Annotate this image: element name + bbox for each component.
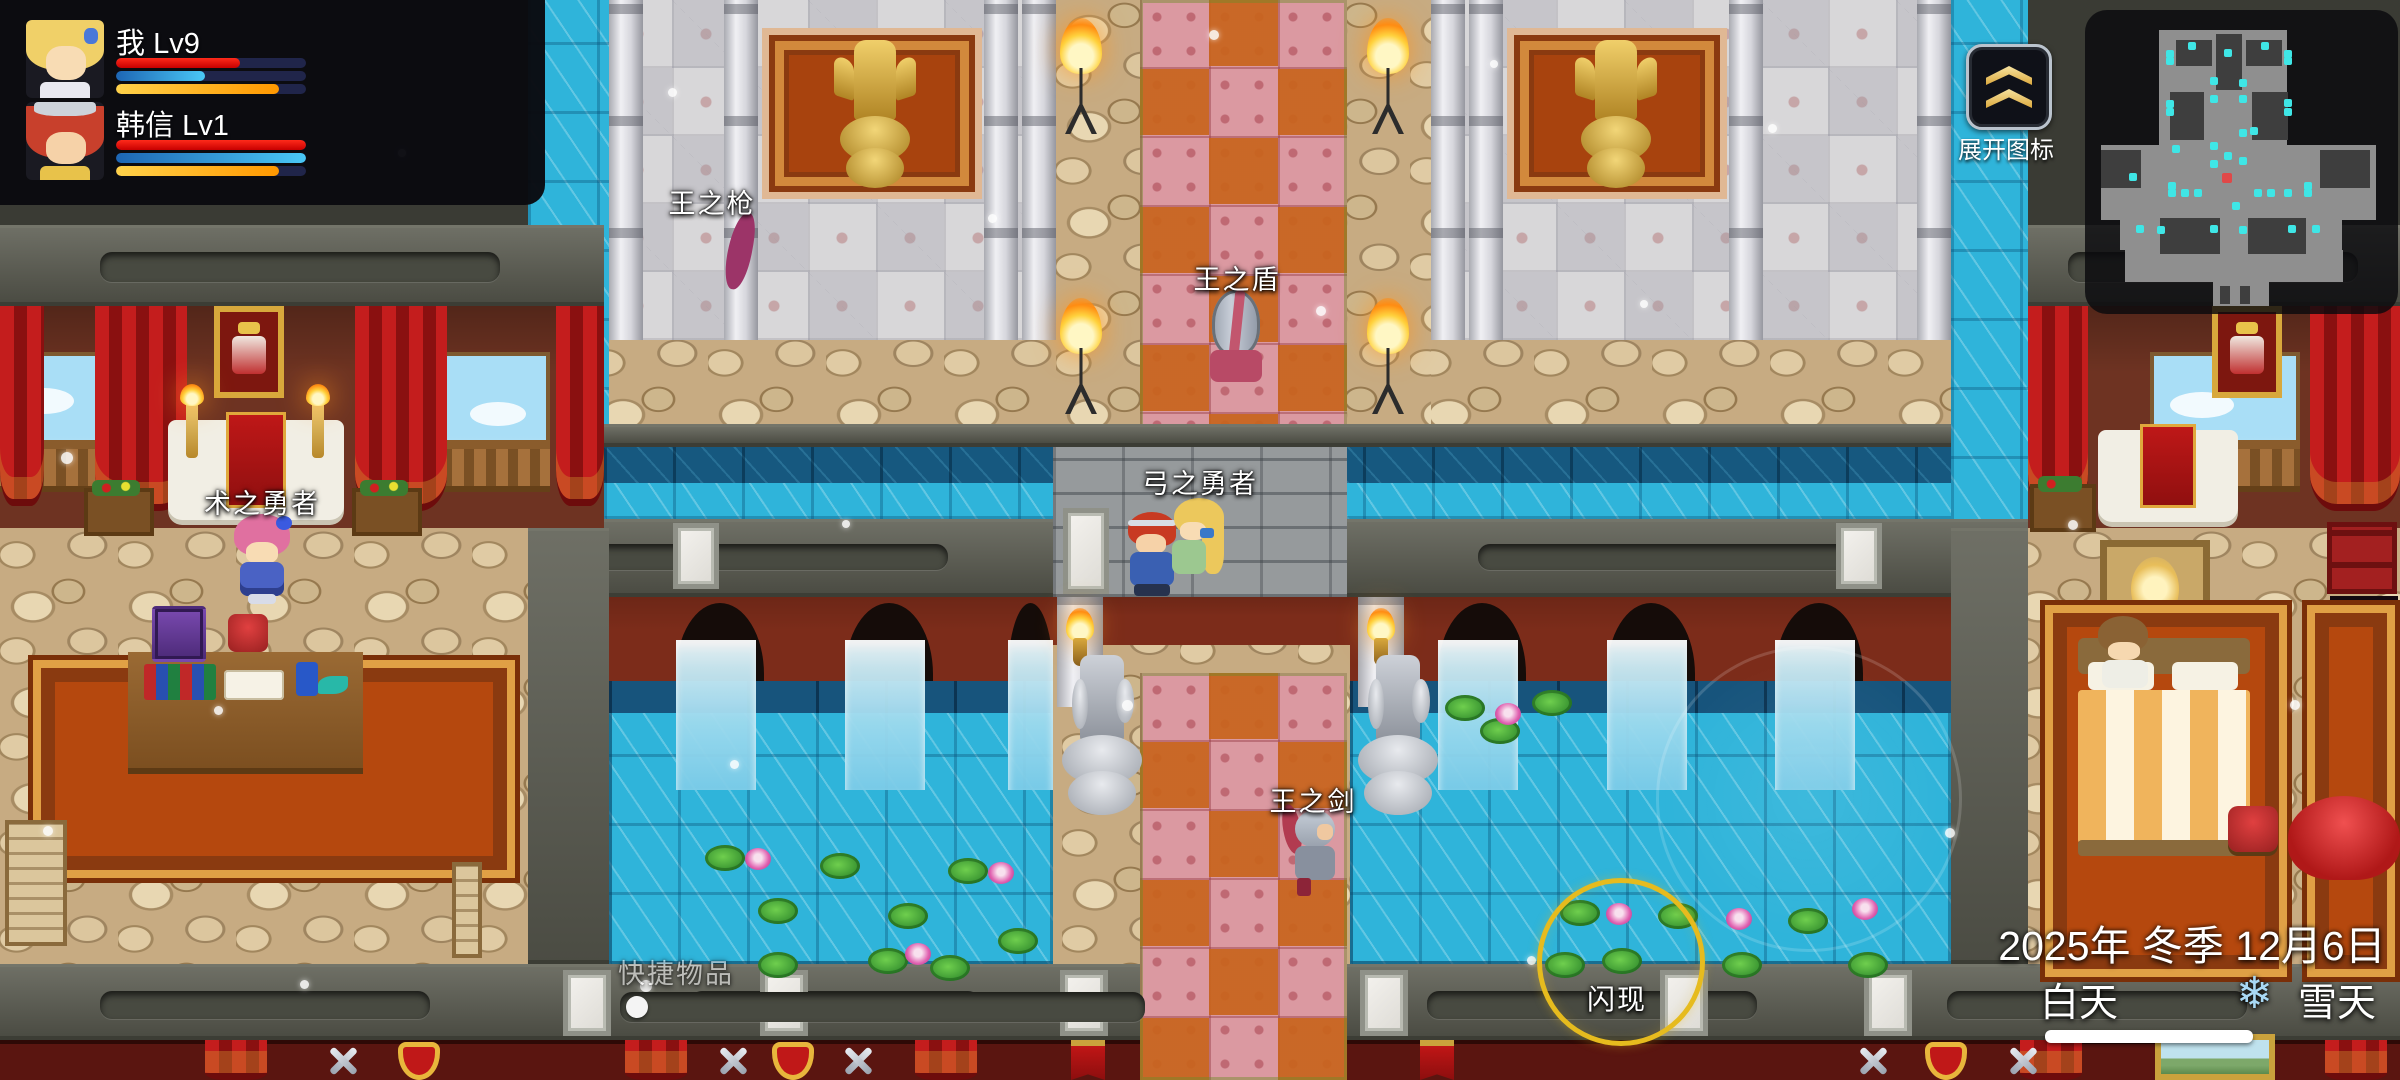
daytime-progress-bar (2045, 1030, 2253, 1043)
minimap-npc-dot (2239, 95, 2247, 103)
snow-particle (1490, 60, 1498, 68)
snow-particle (1122, 700, 1133, 711)
ink-jar (296, 662, 318, 696)
member-level: Lv9 (153, 28, 200, 60)
red-stool (2228, 806, 2278, 852)
torch-stand (1365, 18, 1411, 136)
gold-angel-statue (832, 40, 918, 205)
knight-statue (1354, 655, 1442, 825)
npc-label-sword: 王之剑 (1270, 780, 1357, 819)
minimap-npc-dot (2304, 189, 2312, 197)
minimap-chamber (2240, 286, 2250, 304)
time-of-day: 白天 (2040, 972, 2118, 1028)
minimap-npc-dot (2157, 226, 2165, 234)
minimap-npc-dot (2284, 57, 2292, 65)
minimap-npc-dot (2166, 108, 2174, 116)
marble-tile (673, 523, 719, 589)
curtain (205, 1040, 267, 1080)
minimap-npc-dot (2136, 225, 2144, 233)
flower-box (352, 488, 422, 536)
quick-items-handle[interactable] (626, 996, 648, 1018)
minimap-npc-dot (2224, 152, 2232, 160)
flower-box (2030, 484, 2096, 532)
quick-items-label: 快捷物品 (618, 952, 734, 991)
minimap-npc-dot (2239, 129, 2247, 137)
snow-particle (1316, 306, 1326, 316)
crossed-swords-emblem (2000, 1044, 2044, 1078)
expand-icons-button[interactable] (1966, 44, 2052, 130)
hero-archer[interactable] (1172, 498, 1226, 586)
crossed-swords-emblem (835, 1044, 879, 1078)
minimap-npc-dot (2261, 42, 2269, 50)
crossed-swords-emblem (710, 1044, 754, 1078)
quill-feather (318, 676, 348, 694)
lotus-flower (1726, 908, 1752, 930)
member-name-level: 韩信 Lv1 (116, 102, 229, 144)
lotus-flower (905, 943, 931, 965)
minimap-player-dot (2222, 173, 2232, 183)
red-round-table (2288, 796, 2400, 880)
snow-particle (1527, 956, 1536, 965)
mp-bar (116, 71, 306, 81)
member-name-level: 我 Lv9 (116, 20, 200, 62)
lotus-flower (1495, 703, 1521, 725)
mp-fill (116, 153, 306, 163)
expand-icons-label: 展开图标 (1958, 130, 2054, 165)
crossed-swords-emblem (320, 1044, 364, 1078)
minimap-npc-dot (2239, 79, 2247, 87)
minimap-npc-dot (2129, 173, 2137, 181)
hp-bar (116, 58, 306, 68)
npc-label-shield: 王之盾 (1194, 258, 1281, 297)
minimap-npc-dot (2181, 189, 2189, 197)
snow-particle (2290, 700, 2300, 710)
lily-pad (868, 948, 908, 974)
books (144, 664, 216, 700)
minimap-npc-dot (2168, 189, 2176, 197)
marble-pillar (1917, 0, 1951, 340)
marble-pillar (1431, 0, 1465, 340)
lily-pad (948, 858, 988, 884)
open-book (224, 670, 284, 700)
royal-room (2028, 306, 2400, 528)
candle-flame (180, 384, 204, 406)
tp-fill (116, 166, 279, 176)
minimap-room (2120, 218, 2342, 250)
minimap-chamber (2320, 150, 2370, 188)
torch-stand (1058, 298, 1104, 416)
waterfall (845, 640, 925, 790)
snow-particle (300, 980, 309, 989)
minimap-npc-dot (2267, 189, 2275, 197)
tp-bar (116, 166, 306, 176)
minimap-chamber (2160, 218, 2220, 254)
lily-pad (758, 898, 798, 924)
minimap-npc-dot (2232, 202, 2240, 210)
flash-skill-button[interactable] (1537, 878, 1705, 1046)
lily-pad (998, 928, 1038, 954)
minimap-chamber (2170, 92, 2204, 140)
snow-particle (988, 214, 997, 223)
curtain (625, 1040, 687, 1080)
lily-pad (820, 853, 860, 879)
marble-pillar (1469, 0, 1503, 340)
minimap-npc-dot (2166, 57, 2174, 65)
snow-particle (842, 520, 850, 528)
tp-bar (116, 84, 306, 94)
npc-magic-hero[interactable] (234, 514, 292, 604)
lily-pad (888, 903, 928, 929)
candelabra (186, 400, 198, 458)
minimap-npc-dot (2224, 49, 2232, 57)
npc-spear-hero[interactable] (728, 212, 754, 292)
snow-particle (1640, 300, 1648, 308)
light-reflection (1656, 646, 1962, 952)
snow-particle (43, 826, 53, 836)
bookshelf (2327, 522, 2397, 594)
lotus-flower (1852, 898, 1878, 920)
snow-particle (214, 706, 223, 715)
lily-pad (1722, 952, 1762, 978)
red-stool (228, 614, 268, 652)
minimap-npc-dot (2210, 225, 2218, 233)
minimap-npc-dot (2166, 100, 2174, 108)
chevron-up-icon (1986, 89, 2032, 108)
mp-bar (116, 153, 306, 163)
flash-skill-label: 闪现 (1587, 978, 1647, 1018)
minimap-npc-dot (2284, 108, 2292, 116)
npc-label-archer: 弓之勇者 (1142, 462, 1258, 501)
member-name: 我 (116, 28, 145, 60)
lily-pad (1532, 690, 1572, 716)
wall-scroll (5, 820, 67, 946)
lily-pad (705, 845, 745, 871)
snow-particle (668, 88, 677, 97)
minimap-npc-dot (2254, 189, 2262, 197)
king-portrait (2212, 306, 2282, 398)
hp-bar (116, 140, 306, 150)
wall-scroll (452, 862, 482, 958)
study-desk (128, 652, 363, 768)
snowflake-icon: ❄ (2236, 968, 2273, 1019)
curtain (2325, 1040, 2387, 1080)
minimap-npc-dot (2172, 145, 2180, 153)
crossed-swords-emblem (1850, 1044, 1894, 1078)
marble-tile (1836, 523, 1882, 589)
lily-pad (930, 955, 970, 981)
minimap-npc-dot (2288, 225, 2296, 233)
minimap-chamber (2101, 150, 2141, 188)
stone-wall (1951, 528, 2028, 964)
snow-particle (730, 760, 739, 769)
marble-tile (1063, 508, 1109, 594)
npc-shield-hero[interactable] (1204, 290, 1268, 384)
waterfall (1008, 640, 1053, 790)
snow-particle (61, 452, 73, 464)
stone-wall (528, 528, 609, 964)
member-level: Lv1 (182, 110, 229, 142)
lotus-flower (745, 848, 771, 870)
game-screen: 王之枪 王之盾 弓之勇者 王之剑 术之勇者 我 Lv9 (0, 0, 2400, 1080)
candelabra (312, 400, 324, 458)
lily-pad (758, 952, 798, 978)
snow-particle (1209, 30, 1219, 40)
npc-boy-on-bed[interactable] (2096, 616, 2152, 692)
npc-label-magic: 术之勇者 (204, 482, 320, 521)
chevron-up-icon (1986, 66, 2032, 85)
hp-fill (116, 140, 306, 150)
member-name: 韩信 (116, 110, 174, 142)
red-banner (1071, 1040, 1105, 1080)
gold-angel-statue (1573, 40, 1659, 205)
knight-statue (1058, 655, 1146, 825)
marble-pillar (1729, 0, 1763, 340)
minimap-npc-dot (2239, 226, 2247, 234)
avatar-hanxin[interactable] (26, 102, 104, 180)
npc-label-spear: 王之枪 (669, 182, 756, 221)
minimap-npc-dot (2188, 42, 2196, 50)
marble-tile (563, 970, 611, 1036)
torch-stand (1058, 18, 1104, 136)
minimap-npc-dot (2210, 142, 2218, 150)
lily-pad (1445, 695, 1485, 721)
quick-items-bar[interactable] (620, 992, 1145, 1022)
marble-tile (1864, 970, 1912, 1036)
hp-fill (116, 58, 240, 68)
weather-label: 雪天 (2298, 972, 2376, 1028)
minimap-npc-dot (2194, 189, 2202, 197)
snow-particle (1768, 124, 1777, 133)
minimap-npc-dot (2250, 127, 2258, 135)
red-banner (1420, 1040, 1454, 1080)
snow-particle (1945, 828, 1955, 838)
altar-table (2098, 430, 2238, 522)
king-portrait (214, 306, 284, 398)
candle-flame (306, 384, 330, 406)
minimap-npc-dot (2210, 95, 2218, 103)
lily-pad (1788, 908, 1828, 934)
game-date: 2025年 冬季 12月6日 (1992, 912, 2392, 972)
minimap-npc-dot (2284, 189, 2292, 197)
lotus-flower (988, 862, 1014, 884)
minimap-npc-dot (2312, 225, 2320, 233)
minimap-chamber (2220, 286, 2230, 304)
stone-wall (0, 225, 604, 306)
minimap-npc-dot (2284, 99, 2292, 107)
snow-particle (2068, 520, 2078, 530)
avatar-player[interactable] (26, 20, 104, 98)
minimap-room (2125, 250, 2343, 282)
lily-pad (1848, 952, 1888, 978)
purple-chest (152, 606, 206, 662)
marble-pillar (1022, 0, 1056, 340)
minimap-chamber (2248, 218, 2306, 254)
curtain (915, 1040, 977, 1080)
marble-pillar (984, 0, 1018, 340)
waterfall (676, 640, 756, 790)
marble-pillar (609, 0, 643, 340)
npc-sword-hero[interactable] (1283, 808, 1343, 898)
minimap-npc-dot (2239, 157, 2247, 165)
minimap-npc-dot (2210, 77, 2218, 85)
marble-tile (1360, 970, 1408, 1036)
torch-stand (1365, 298, 1411, 416)
mp-fill (116, 71, 205, 81)
minimap-npc-dot (2210, 160, 2218, 168)
ledge (604, 424, 1951, 447)
flower-box (84, 488, 154, 536)
party-status-panel: 我 Lv9 韩信 Lv1 (0, 0, 545, 205)
tp-fill (116, 84, 279, 94)
